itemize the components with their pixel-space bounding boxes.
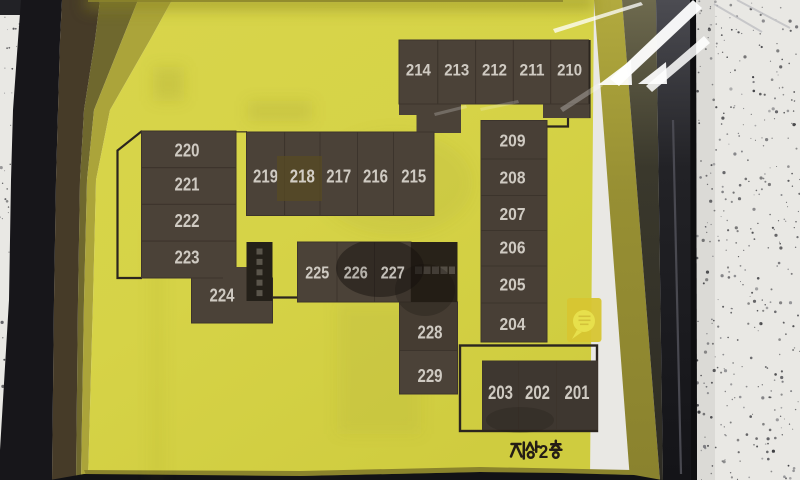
svg-text:201: 201 bbox=[565, 383, 590, 404]
svg-text:229: 229 bbox=[418, 366, 443, 386]
svg-text:215: 215 bbox=[401, 167, 426, 187]
svg-text:203: 203 bbox=[488, 383, 513, 404]
svg-text:219: 219 bbox=[253, 167, 278, 187]
svg-text:220: 220 bbox=[175, 140, 200, 160]
svg-text:223: 223 bbox=[175, 247, 200, 267]
svg-text:2: 2 bbox=[539, 442, 549, 462]
svg-text:214: 214 bbox=[406, 61, 431, 80]
svg-text:212: 212 bbox=[482, 61, 507, 80]
svg-text:208: 208 bbox=[500, 168, 526, 188]
svg-text:207: 207 bbox=[500, 204, 526, 224]
svg-text:206: 206 bbox=[500, 237, 526, 257]
svg-text:211: 211 bbox=[520, 61, 545, 80]
svg-text:226: 226 bbox=[344, 262, 368, 282]
svg-text:221: 221 bbox=[175, 174, 200, 194]
svg-text:218: 218 bbox=[290, 167, 315, 187]
svg-text:213: 213 bbox=[444, 61, 469, 80]
svg-text:205: 205 bbox=[500, 274, 526, 294]
svg-text:202: 202 bbox=[525, 383, 550, 404]
svg-text:210: 210 bbox=[557, 61, 582, 80]
svg-text:217: 217 bbox=[326, 167, 351, 187]
svg-text:227: 227 bbox=[381, 262, 405, 282]
svg-text:228: 228 bbox=[418, 322, 443, 342]
svg-text:224: 224 bbox=[210, 285, 235, 305]
svg-text:216: 216 bbox=[363, 167, 388, 187]
svg-text:225: 225 bbox=[305, 262, 329, 282]
svg-text:222: 222 bbox=[175, 211, 200, 231]
svg-text:209: 209 bbox=[500, 131, 526, 151]
svg-text:204: 204 bbox=[500, 314, 526, 334]
